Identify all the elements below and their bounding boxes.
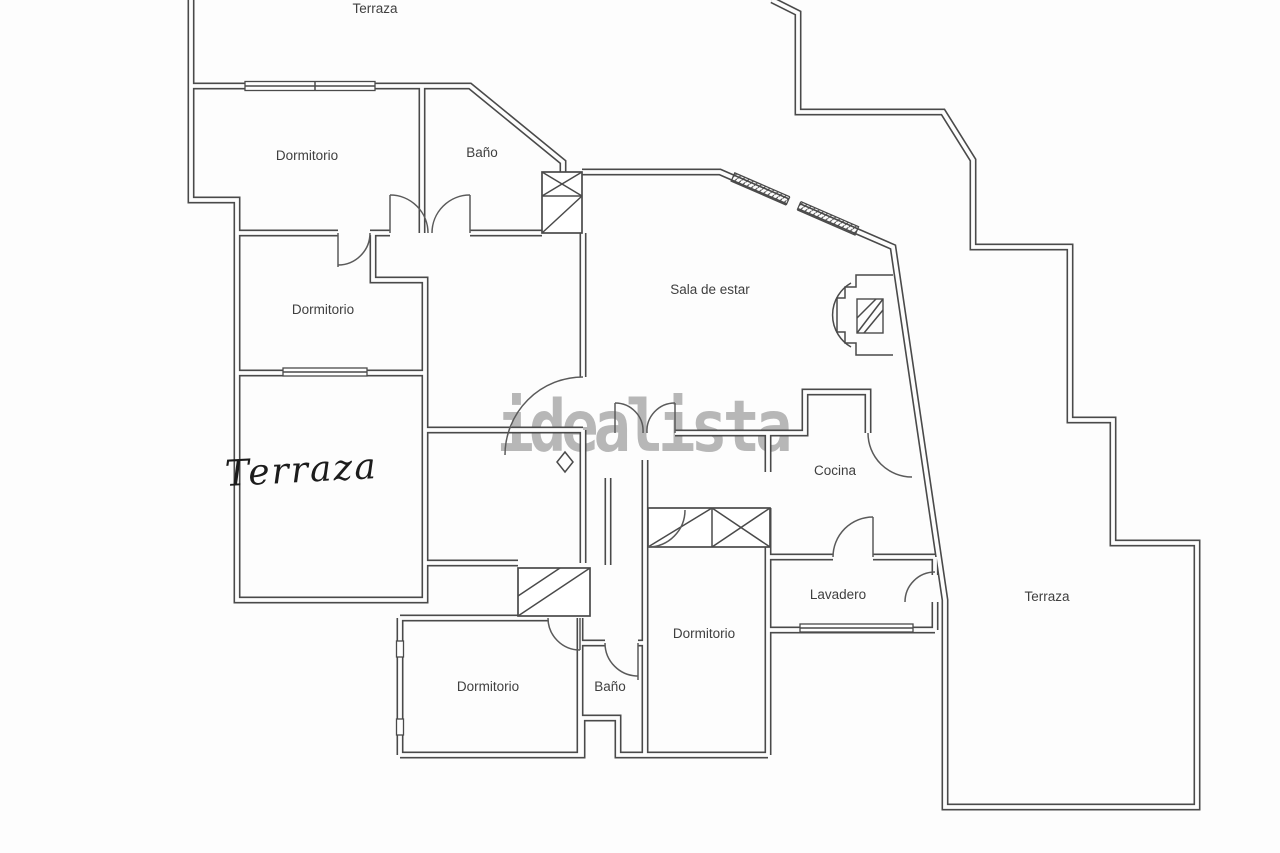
window-top-terraza: [245, 82, 375, 91]
floor-plan-image: idealista: [0, 0, 1280, 853]
shaft-hatch-icon: [648, 508, 770, 547]
room-label-sala-de-estar: Sala de estar: [670, 282, 750, 297]
room-label-terraza-left-handwritten: Terraza: [224, 446, 379, 495]
room-label-dormitorio-bottom-center: Dormitorio: [673, 626, 735, 641]
room-label-dormitorio-mid-left: Dormitorio: [292, 302, 354, 317]
room-label-terraza-right: Terraza: [1024, 589, 1070, 604]
room-label-bano-bottom: Baño: [594, 679, 626, 694]
room-label-dormitorio-top-left: Dormitorio: [276, 148, 338, 163]
room-label-bano-top: Baño: [466, 145, 498, 160]
room-label-cocina: Cocina: [814, 463, 857, 478]
shaft-hatch-icon: [518, 568, 590, 616]
shaft-hatch-icon: [542, 172, 582, 233]
window-lavadero: [800, 624, 913, 632]
floor-plan-svg: idealista: [0, 0, 1280, 853]
room-label-lavadero: Lavadero: [810, 587, 866, 602]
room-label-dormitorio-bottom-left: Dormitorio: [457, 679, 519, 694]
room-label-terraza-top: Terraza: [352, 1, 398, 16]
wall-break-icon: [397, 641, 404, 657]
window-dormitorio-mid: [283, 368, 367, 376]
wall-break-icon: [397, 719, 404, 735]
